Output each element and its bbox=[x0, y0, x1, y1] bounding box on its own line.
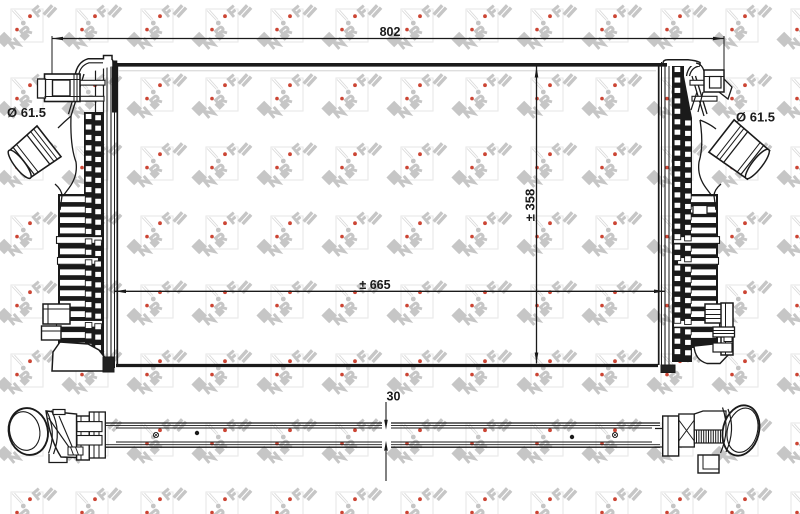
svg-text:Ø 61.5: Ø 61.5 bbox=[736, 110, 775, 125]
svg-text:802: 802 bbox=[380, 25, 401, 39]
svg-text:± 665: ± 665 bbox=[359, 278, 390, 292]
svg-text:Ø 61.5: Ø 61.5 bbox=[7, 105, 46, 120]
svg-text:30: 30 bbox=[387, 390, 401, 404]
svg-text:± 358: ± 358 bbox=[523, 189, 538, 221]
